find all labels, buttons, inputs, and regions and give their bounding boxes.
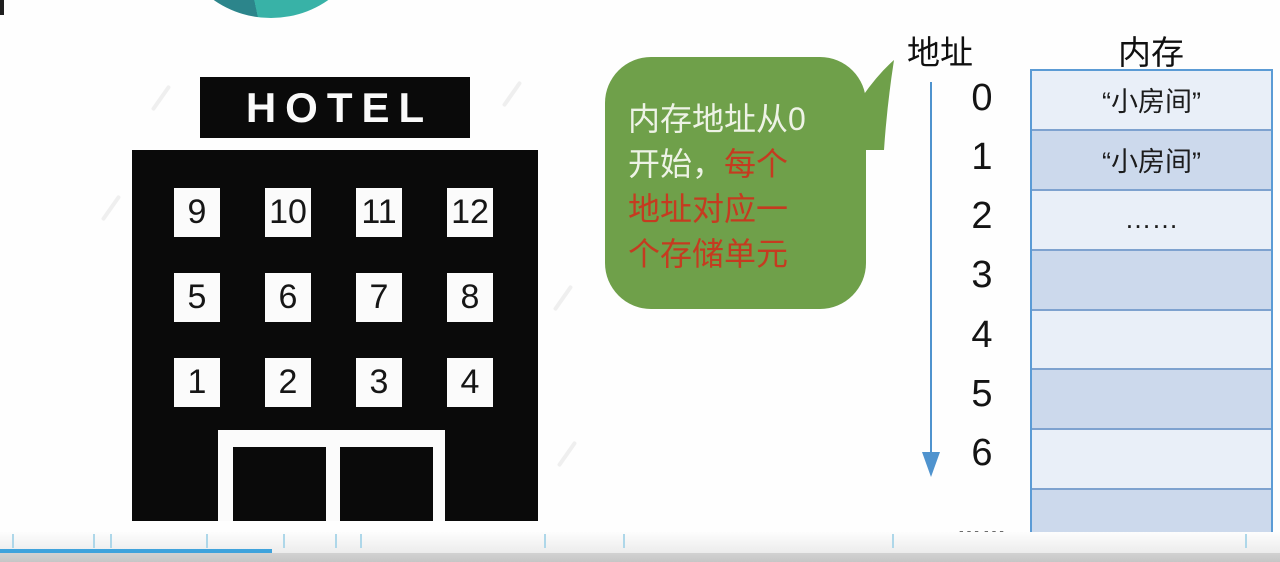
hotel-window: 5 xyxy=(174,273,220,322)
memory-cell: “小房间” xyxy=(1032,131,1271,191)
hotel-door-left xyxy=(233,447,326,521)
seekbar-chapter-tick xyxy=(335,534,337,548)
hotel-window: 8 xyxy=(447,273,493,322)
logo-circle xyxy=(176,0,366,18)
hotel-window: 11 xyxy=(356,188,402,237)
memory-cell xyxy=(1032,311,1271,371)
hotel-window: 9 xyxy=(174,188,220,237)
address-value: 6 xyxy=(955,424,1009,483)
bubble-text-normal: 开始， xyxy=(628,146,724,182)
hotel-window: 4 xyxy=(447,358,493,407)
hotel-window: 3 xyxy=(356,358,402,407)
memory-column-header: 内存 xyxy=(1090,26,1212,74)
hotel-window: 12 xyxy=(447,188,493,237)
hotel-windows-grid: 9 10 11 12 5 6 7 8 1 2 3 4 xyxy=(174,188,493,407)
hotel-door-right xyxy=(340,447,433,521)
bubble-text-line3: 地址对应一 xyxy=(628,187,866,232)
address-value: 1 xyxy=(955,128,1009,187)
hotel-entrance xyxy=(218,430,445,521)
address-list: 0 1 2 3 4 5 6 …… xyxy=(955,69,1009,550)
memory-cell xyxy=(1032,251,1271,311)
address-value: 2 xyxy=(955,187,1009,246)
bubble-text-line1: 内存地址从0 xyxy=(628,97,866,142)
hotel-sign-label: HOTEL xyxy=(237,84,433,132)
seekbar-chapter-tick xyxy=(360,534,362,548)
memory-cell: “小房间” xyxy=(1032,71,1271,131)
address-value: 4 xyxy=(955,306,1009,365)
bubble-text-highlight: 每个 xyxy=(724,146,788,182)
memory-table: “小房间” “小房间” …… xyxy=(1030,69,1273,550)
hotel-window: 1 xyxy=(174,358,220,407)
memory-cell xyxy=(1032,430,1271,490)
background-scratch xyxy=(553,285,573,312)
background-scratch xyxy=(101,195,121,222)
bubble-text-line2: 开始，每个 xyxy=(628,142,866,187)
hotel-sign: HOTEL xyxy=(200,77,470,138)
seekbar-chapter-tick xyxy=(892,534,894,548)
seekbar-chapter-tick xyxy=(110,534,112,548)
seekbar-chapter-tick xyxy=(1245,534,1247,548)
seekbar-chapter-tick xyxy=(12,534,14,548)
slide-canvas: HOTEL 9 10 11 12 5 6 7 8 1 2 3 4 内存地址从0 … xyxy=(0,0,1280,562)
background-scratch xyxy=(502,81,522,108)
hotel-window: 6 xyxy=(265,273,311,322)
seekbar-chapter-tick xyxy=(544,534,546,548)
player-bottom-bar xyxy=(0,553,1280,562)
hotel-window: 7 xyxy=(356,273,402,322)
address-value: 3 xyxy=(955,246,1009,305)
down-arrow-head-icon xyxy=(922,452,940,477)
hotel-window: 2 xyxy=(265,358,311,407)
address-value: 0 xyxy=(955,69,1009,128)
video-seekbar[interactable] xyxy=(0,532,1280,553)
address-value: 5 xyxy=(955,365,1009,424)
memory-cell: …… xyxy=(1032,191,1271,251)
bubble-text-line4: 个存储单元 xyxy=(628,232,866,277)
hotel-building: 9 10 11 12 5 6 7 8 1 2 3 4 xyxy=(132,150,538,521)
seekbar-chapter-tick xyxy=(623,534,625,548)
address-column-header: 地址 xyxy=(880,26,1000,74)
seekbar-chapter-tick xyxy=(283,534,285,548)
background-scratch xyxy=(151,85,171,112)
frame-edge-artifact xyxy=(0,0,4,15)
down-arrow-line xyxy=(930,82,932,453)
seekbar-chapter-tick xyxy=(93,534,95,548)
seekbar-chapter-tick xyxy=(206,534,208,548)
hotel-window: 10 xyxy=(265,188,311,237)
background-scratch xyxy=(557,441,577,468)
memory-cell xyxy=(1032,370,1271,430)
speech-bubble: 内存地址从0 开始，每个 地址对应一 个存储单元 xyxy=(605,57,866,309)
